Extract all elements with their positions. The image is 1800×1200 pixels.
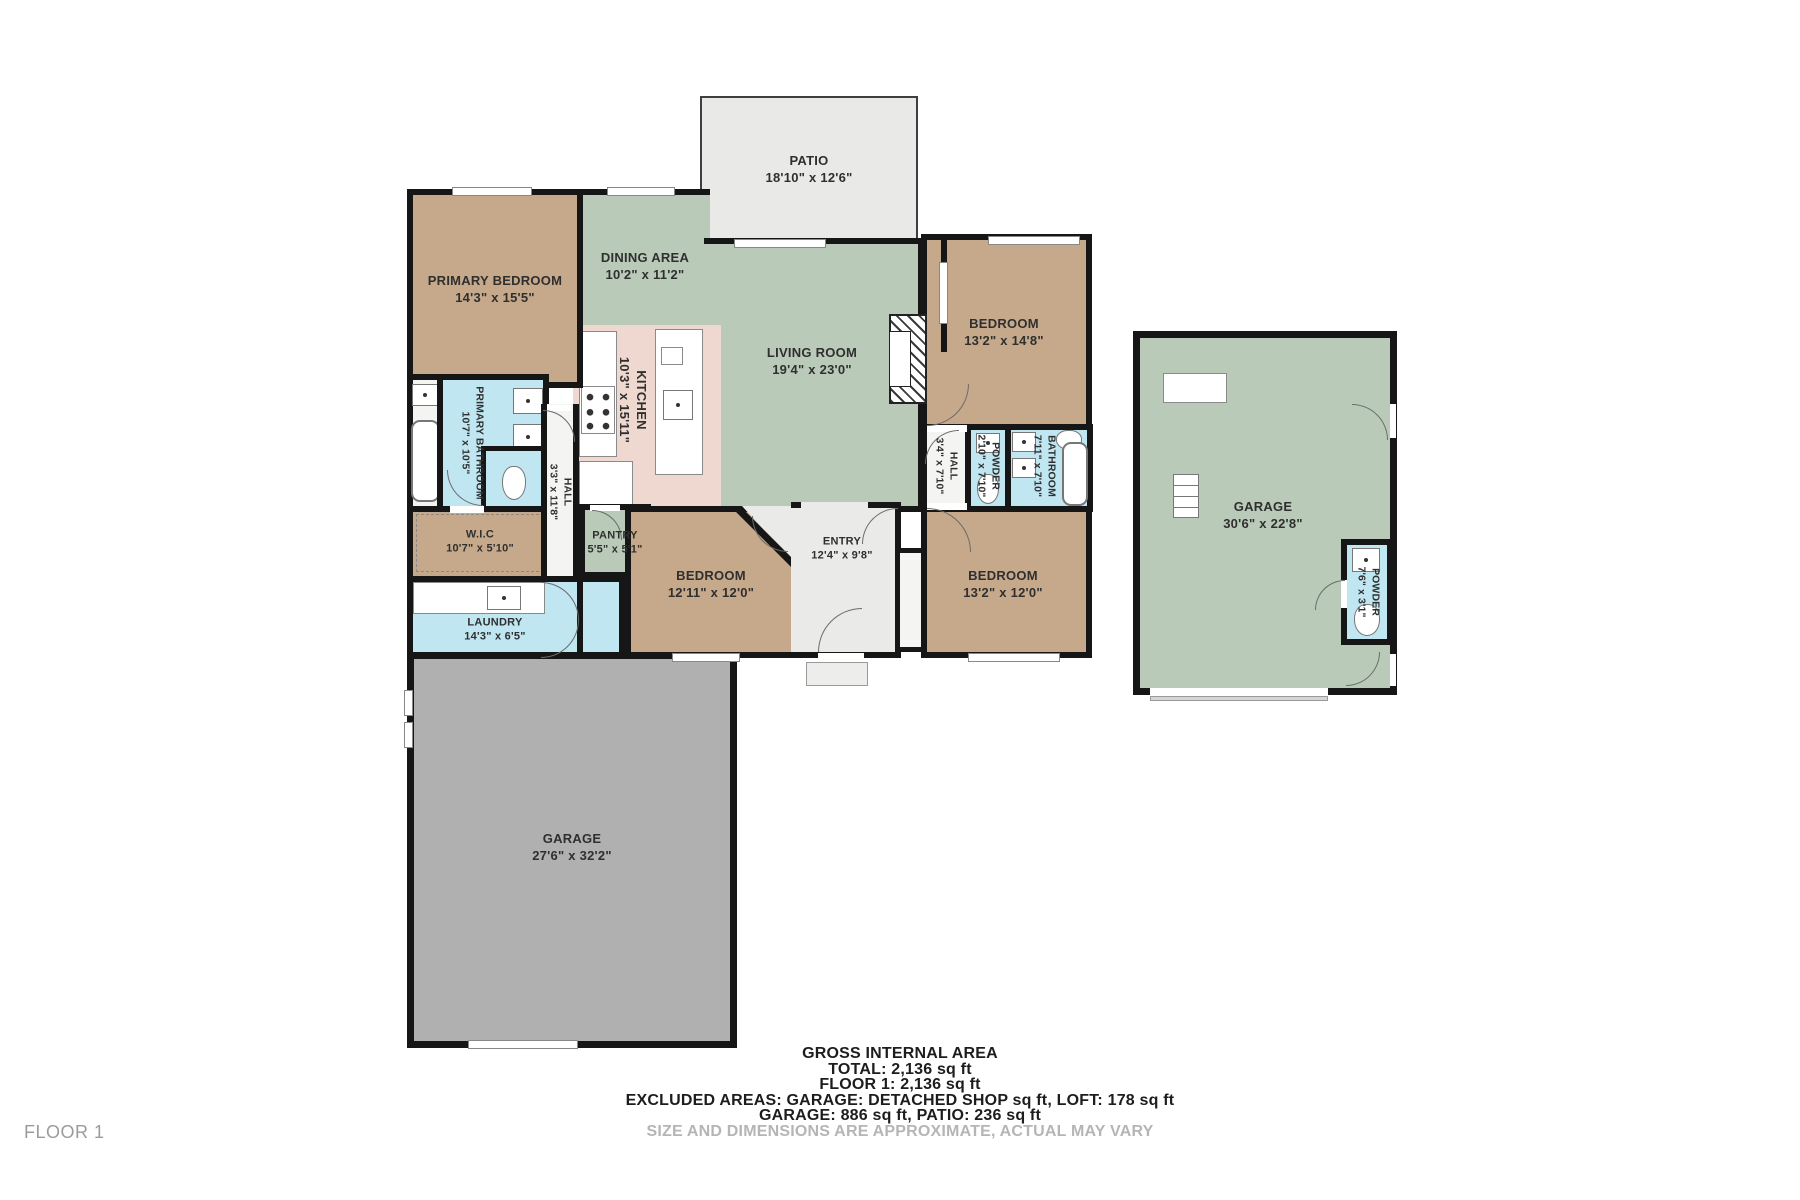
room-label-bedroom-ne: BEDROOM 13'2" x 14'8" — [964, 316, 1044, 350]
room-dims: 12'11" x 12'0" — [668, 585, 754, 602]
room-label-bedroom-se: BEDROOM 13'2" x 12'0" — [963, 568, 1043, 602]
room-label-garage-detached: GARAGE 30'6" x 22'8" — [1223, 499, 1303, 533]
gross-internal-area-heading: GROSS INTERNAL AREA — [0, 1046, 1800, 1062]
floor1-area: FLOOR 1: 2,136 sq ft — [0, 1077, 1800, 1093]
room-dims: 14'3" x 6'5" — [464, 630, 525, 644]
total-area: TOTAL: 2,136 sq ft — [0, 1062, 1800, 1078]
room-dims: 27'6" x 32'2" — [532, 848, 612, 865]
room-label-patio: PATIO 18'10" x 12'6" — [765, 153, 852, 187]
room-label-pantry: PANTRY 5'5" x 5'1" — [587, 529, 642, 558]
disclaimer: SIZE AND DIMENSIONS ARE APPROXIMATE, ACT… — [0, 1124, 1800, 1140]
room-dims: 7'6" x 3'1" — [1354, 566, 1368, 617]
garage-door-opening — [1150, 688, 1328, 696]
window — [607, 187, 675, 196]
room-name: BEDROOM — [668, 568, 754, 585]
room-dims: 12'4" x 9'8" — [811, 549, 872, 563]
sliding-patio-door — [734, 239, 826, 248]
room-dims: 3'4" x 7'10" — [932, 437, 946, 494]
room-label-garage-attached: GARAGE 27'6" x 32'2" — [532, 831, 612, 865]
window — [452, 187, 532, 196]
garage-side-notch — [404, 722, 413, 748]
room-name: GARAGE — [532, 831, 612, 848]
room-name: LAUNDRY — [464, 616, 525, 630]
room-dims: 30'6" x 22'8" — [1223, 516, 1303, 533]
stove-icon — [581, 386, 615, 434]
floor-plan: PATIO 18'10" x 12'6" PRIMARY BEDROOM 14'… — [0, 0, 1800, 1200]
garage-side-notch — [404, 690, 413, 716]
room-name: LIVING ROOM — [767, 345, 857, 362]
room-dims: 7'11" x 7'10" — [1030, 435, 1044, 497]
window — [672, 653, 740, 662]
room-dims: 18'10" x 12'6" — [765, 170, 852, 187]
room-dims: 14'3" x 15'5" — [428, 290, 562, 307]
room-name: PRIMARY BEDROOM — [428, 273, 562, 290]
door-opening — [450, 506, 484, 513]
laundry-sink-icon — [487, 586, 521, 610]
garage-door-band — [1150, 696, 1328, 701]
sliding-door-icon — [939, 262, 948, 324]
room-dims: 10'2" x 11'2" — [601, 267, 689, 284]
room-name: ENTRY — [811, 535, 872, 549]
fireplace-insert — [889, 331, 911, 387]
room-name: PRIMARY BATHROOM — [472, 386, 486, 499]
room-dims: 13'2" x 12'0" — [963, 585, 1043, 602]
room-label-powder-east: POWDER 2'10" x 7'10" — [974, 435, 1001, 498]
island-sink-icon — [663, 390, 693, 420]
room-dims: 19'4" x 23'0" — [767, 362, 857, 379]
room-dims: 3'3" x 11'8" — [546, 464, 560, 520]
room-dims: 13'2" x 14'8" — [964, 333, 1044, 350]
room-name: POWDER — [988, 435, 1002, 498]
primary-bath-sink-1-icon — [513, 388, 543, 414]
room-label-bedroom-sw: BEDROOM 12'11" x 12'0" — [668, 568, 754, 602]
room-name: POWDER — [1368, 566, 1382, 617]
room-name: BATHROOM — [1044, 435, 1058, 497]
room-label-kitchen: KITCHEN 10'3" x 15'11" — [615, 357, 649, 443]
room-label-wic: W.I.C 10'7" x 5'10" — [446, 528, 514, 557]
room-label-powder-garage: POWDER 7'6" x 3'1" — [1354, 566, 1381, 617]
room-dims: 2'10" x 7'10" — [974, 435, 988, 498]
area-summary: GROSS INTERNAL AREA TOTAL: 2,136 sq ft F… — [0, 1046, 1800, 1139]
workbench-icon — [1163, 373, 1227, 403]
bathtub-icon — [411, 420, 440, 502]
room-name: BEDROOM — [963, 568, 1043, 585]
room-name: HALL — [946, 437, 960, 494]
garage-patio-area: GARAGE: 886 sq ft, PATIO: 236 sq ft — [0, 1108, 1800, 1124]
laundry-counter — [413, 582, 545, 614]
room-label-bathroom-east: BATHROOM 7'11" x 7'10" — [1030, 435, 1057, 497]
room-label-primary-bedroom: PRIMARY BEDROOM 14'3" x 15'5" — [428, 273, 562, 307]
room-name: GARAGE — [1223, 499, 1303, 516]
room-label-primary-bathroom: PRIMARY BATHROOM 10'7" x 10'5" — [458, 386, 485, 499]
room-label-dining: DINING AREA 10'2" x 11'2" — [601, 250, 689, 284]
shelving-icon — [1173, 474, 1199, 518]
island-cooktop — [661, 347, 683, 365]
wall-stub — [791, 502, 801, 508]
window — [968, 653, 1060, 662]
room-name: PATIO — [765, 153, 852, 170]
room-dims: 5'5" x 5'1" — [587, 543, 642, 557]
room-dims: 10'7" x 5'10" — [446, 542, 514, 556]
excluded-areas: EXCLUDED AREAS: GARAGE: DETACHED SHOP sq… — [0, 1093, 1800, 1109]
front-porch — [806, 662, 868, 686]
front-door-opening — [818, 653, 864, 659]
door-opening — [1390, 404, 1396, 438]
room-label-hall-east: HALL 3'4" x 7'10" — [932, 437, 959, 494]
vanity-sink-icon — [412, 384, 438, 406]
door-opening — [1390, 654, 1396, 686]
room-name: HALL — [560, 464, 574, 520]
room-label-hall-main: HALL 3'3" x 11'8" — [546, 464, 573, 520]
room-dims: 10'3" x 15'11" — [615, 357, 632, 443]
room-label-entry: ENTRY 12'4" x 9'8" — [811, 535, 872, 564]
room-label-laundry: LAUNDRY 14'3" x 6'5" — [464, 616, 525, 645]
room-name: DINING AREA — [601, 250, 689, 267]
room-mud-vestibule — [577, 576, 625, 662]
window — [988, 236, 1080, 245]
room-name: KITCHEN — [632, 357, 649, 443]
room-name: PANTRY — [587, 529, 642, 543]
room-dims: 10'7" x 10'5" — [458, 386, 472, 499]
room-name: BEDROOM — [964, 316, 1044, 333]
bath-tub-icon — [1062, 442, 1088, 506]
primary-toilet-icon — [502, 466, 526, 500]
room-label-living: LIVING ROOM 19'4" x 23'0" — [767, 345, 857, 379]
floor-label: FLOOR 1 — [24, 1122, 105, 1143]
room-name: W.I.C — [446, 528, 514, 542]
